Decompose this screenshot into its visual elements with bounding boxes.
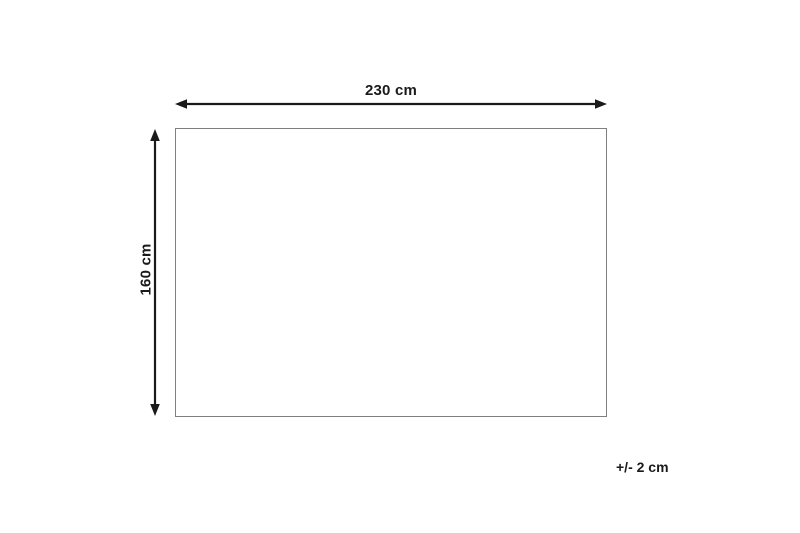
tolerance-label: +/- 2 cm xyxy=(616,459,669,475)
height-dimension-label: 160 cm xyxy=(138,248,155,296)
arrowhead-right-icon xyxy=(595,99,607,109)
arrowhead-up-icon xyxy=(150,129,160,141)
width-dimension-label: 230 cm xyxy=(175,82,607,99)
arrowhead-down-icon xyxy=(150,404,160,416)
product-outline xyxy=(175,128,607,417)
dimension-diagram: 230 cm 160 cm +/- 2 cm xyxy=(0,0,800,533)
width-arrow xyxy=(175,99,607,109)
arrowhead-left-icon xyxy=(175,99,187,109)
